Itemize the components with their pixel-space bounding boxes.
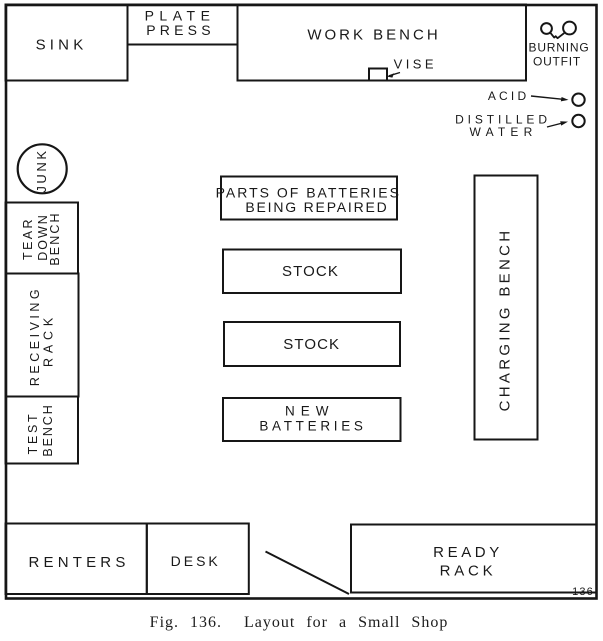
svg-text:PRESS: PRESS (146, 22, 214, 38)
svg-text:Fig. 136. Layout for a Small: Fig. 136. Layout for a Small Shop (150, 614, 449, 631)
svg-text:TEST: TEST (26, 412, 40, 455)
svg-text:CHARGING BENCH: CHARGING BENCH (497, 228, 514, 412)
svg-text:TEAR: TEAR (21, 217, 35, 260)
svg-text:BENCH: BENCH (41, 403, 55, 456)
svg-text:RECEIVING: RECEIVING (28, 286, 42, 386)
svg-text:WATER: WATER (470, 125, 538, 139)
svg-text:VISE: VISE (394, 56, 437, 71)
svg-text:WORK BENCH: WORK BENCH (307, 27, 440, 44)
svg-text:BURNING: BURNING (529, 41, 590, 55)
svg-text:RENTERS: RENTERS (28, 554, 129, 571)
svg-text:136: 136 (572, 586, 594, 598)
svg-text:OUTFIT: OUTFIT (533, 55, 581, 69)
svg-text:RACK: RACK (42, 313, 56, 367)
svg-text:BENCH: BENCH (48, 211, 62, 265)
svg-text:READY: READY (433, 544, 503, 561)
svg-text:STOCK: STOCK (283, 336, 340, 353)
svg-text:DESK: DESK (171, 553, 221, 569)
svg-text:SINK: SINK (36, 36, 88, 53)
svg-text:JUNK: JUNK (34, 148, 49, 192)
svg-text:STOCK: STOCK (282, 263, 339, 280)
svg-text:ACID: ACID (488, 89, 529, 103)
svg-text:NEW: NEW (285, 404, 335, 419)
svg-text:BEING REPAIRED: BEING REPAIRED (245, 199, 388, 215)
svg-text:BATTERIES: BATTERIES (259, 419, 366, 434)
svg-text:RACK: RACK (440, 563, 497, 580)
